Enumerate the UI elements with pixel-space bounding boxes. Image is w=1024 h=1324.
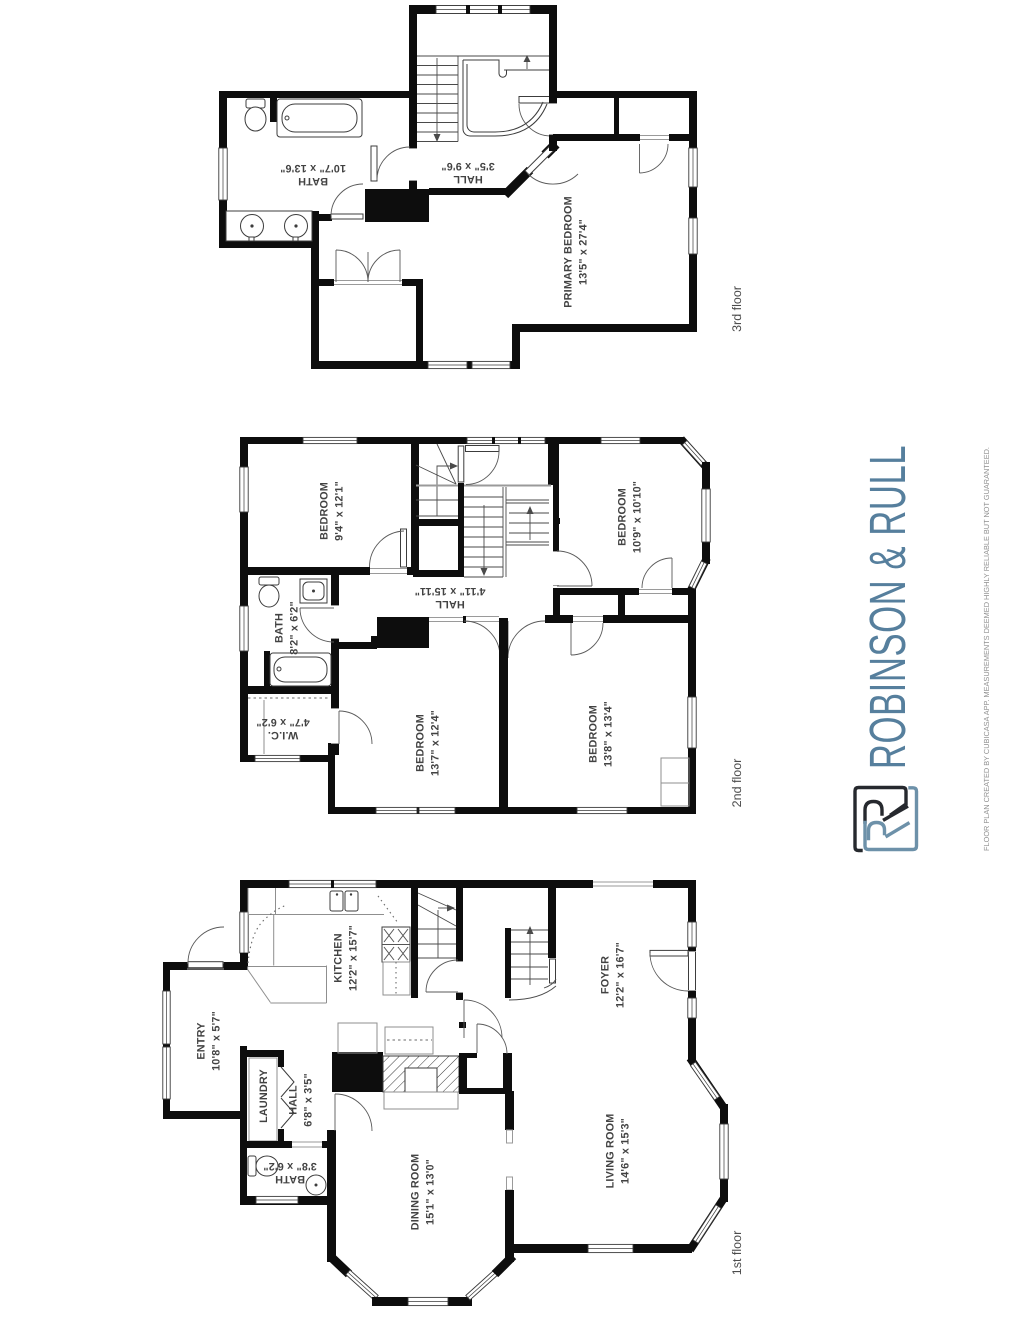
svg-text:12'2" x 16'7": 12'2" x 16'7" [615,942,627,1008]
svg-text:ROBINSON & RULL: ROBINSON & RULL [859,445,916,769]
svg-text:LIVING ROOM: LIVING ROOM [605,1114,617,1189]
svg-text:ENTRY: ENTRY [196,1022,208,1060]
svg-text:FLOOR PLAN CREATED BY CUBICASA: FLOOR PLAN CREATED BY CUBICASA APP. MEAS… [982,447,991,851]
svg-text:12'2" x 15'7": 12'2" x 15'7" [348,925,360,991]
svg-text:FOYER: FOYER [600,956,612,994]
svg-text:10'7" x 13'6": 10'7" x 13'6" [280,162,346,174]
svg-text:14'6" x 15'3": 14'6" x 15'3" [620,1118,632,1184]
svg-text:10'9" x 10'10": 10'9" x 10'10" [632,481,644,553]
svg-text:1st floor: 1st floor [730,1231,744,1275]
svg-text:3'5" x 9'6": 3'5" x 9'6" [441,160,495,172]
svg-text:3'8" x 6'2": 3'8" x 6'2" [263,1160,317,1172]
svg-text:4'7" x 6'2": 4'7" x 6'2" [256,716,310,728]
svg-text:PRIMARY BEDROOM: PRIMARY BEDROOM [563,196,575,308]
svg-text:BEDROOM: BEDROOM [588,705,600,763]
svg-text:DINING ROOM: DINING ROOM [410,1154,422,1231]
svg-text:BATH: BATH [298,175,328,187]
svg-text:KITCHEN: KITCHEN [333,933,345,982]
svg-text:15'1" x 13'0": 15'1" x 13'0" [425,1159,437,1225]
svg-text:13'8" x 13'4": 13'8" x 13'4" [603,701,615,767]
svg-text:6'8" x 3'5": 6'8" x 3'5" [303,1073,315,1127]
svg-text:2nd floor: 2nd floor [730,759,744,808]
svg-text:9'4" x 12'1": 9'4" x 12'1" [334,481,346,541]
svg-text:BEDROOM: BEDROOM [617,488,629,546]
svg-text:3rd floor: 3rd floor [730,286,744,332]
svg-text:8'2" x 6'2": 8'2" x 6'2" [289,601,301,655]
svg-text:4'11" x 15'11": 4'11" x 15'11" [414,585,485,597]
svg-text:HALL: HALL [288,1085,300,1115]
svg-text:13'7" x 12'4": 13'7" x 12'4" [430,710,442,776]
svg-text:HALL: HALL [435,598,465,610]
svg-text:W.I.C.: W.I.C. [268,729,299,741]
svg-text:BEDROOM: BEDROOM [319,482,331,540]
svg-text:BEDROOM: BEDROOM [415,714,427,772]
svg-text:10'8" x 5'7": 10'8" x 5'7" [211,1011,223,1071]
svg-text:BATH: BATH [274,613,286,643]
svg-text:13'5" x 27'4": 13'5" x 27'4" [578,219,590,285]
svg-text:BATH: BATH [275,1173,305,1185]
svg-text:LAUNDRY: LAUNDRY [258,1069,270,1123]
svg-text:HALL: HALL [453,173,483,185]
